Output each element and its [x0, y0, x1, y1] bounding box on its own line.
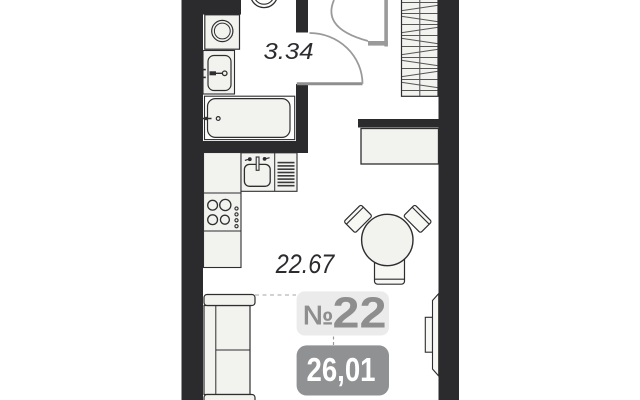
svg-text:22.67: 22.67 — [275, 249, 335, 279]
svg-text:22: 22 — [333, 290, 387, 338]
svg-text:№: № — [303, 300, 334, 331]
svg-text:3.34: 3.34 — [264, 38, 314, 64]
svg-text:26,01: 26,01 — [307, 352, 376, 389]
